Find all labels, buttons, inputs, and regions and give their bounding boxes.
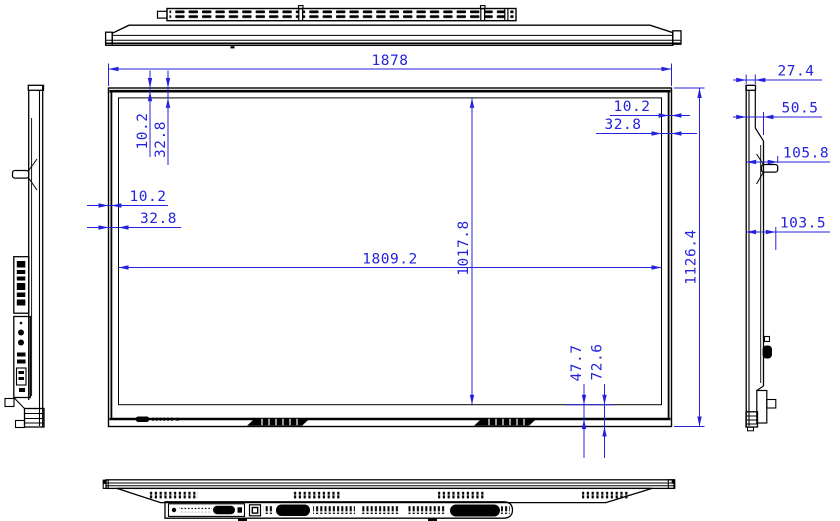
dimension-annotations: 1878 1126.4 1809.2 1017.8 10.2 32.8 10.2… — [87, 53, 830, 458]
bottom-bezel-bar — [106, 480, 674, 489]
dim-depth-handle: 105.8 — [783, 146, 829, 162]
bottom-vent-group-1 — [148, 492, 198, 499]
left-handle — [13, 159, 38, 190]
dim-bezel-top-outer: 32.8 — [153, 121, 169, 158]
dim-active-width: 1809.2 — [362, 252, 417, 268]
dim-bezel-left-outer: 32.8 — [140, 211, 177, 227]
left-connector-panel-lower — [14, 317, 31, 398]
drawing-canvas: 1878 1126.4 1809.2 1017.8 10.2 32.8 10.2… — [0, 0, 840, 521]
right-top-cap — [746, 85, 756, 90]
power-switch — [250, 505, 261, 516]
dim-depth-bottom-connector: 103.5 — [780, 216, 826, 232]
dim-bezel-right-inner: 10.2 — [614, 99, 651, 115]
dsub-connector-left — [276, 505, 310, 517]
left-connector-panel-upper — [14, 257, 29, 314]
dim-depth-body: 50.5 — [782, 101, 819, 117]
top-view — [106, 6, 681, 49]
dim-bezel-right-outer: 32.8 — [605, 117, 642, 133]
dim-bezel-bottom-outer: 72.6 — [590, 344, 606, 381]
bottom-view — [103, 480, 675, 521]
dsub-connector-right — [450, 505, 500, 517]
left-bracket — [5, 399, 14, 407]
dim-depth-panel: 27.4 — [778, 64, 815, 80]
bottom-vent-group-3 — [438, 492, 484, 499]
speaker-grille-right — [474, 418, 537, 425]
top-vent-left-tab — [158, 11, 168, 18]
left-side-view — [5, 85, 44, 427]
top-foot-mark — [231, 46, 235, 48]
right-foot-tab — [767, 400, 776, 409]
bottom-connector-bar — [165, 502, 513, 518]
dim-bezel-top-inner: 10.2 — [135, 113, 151, 150]
bottom-vent-group-4 — [582, 492, 628, 499]
top-vent-slots — [170, 10, 514, 20]
right-side-view — [746, 85, 778, 431]
speaker-grille-left — [247, 418, 310, 425]
dim-overall-width: 1878 — [372, 53, 409, 69]
dim-overall-height: 1126.4 — [684, 229, 700, 284]
dim-bezel-left-inner: 10.2 — [130, 189, 167, 205]
top-chassis — [106, 25, 681, 48]
side-button — [765, 337, 770, 342]
technical-drawing: 1878 1126.4 1809.2 1017.8 10.2 32.8 10.2… — [0, 0, 840, 521]
ir-receiver — [136, 417, 179, 423]
side-port — [763, 346, 773, 359]
dim-active-height: 1017.8 — [456, 220, 472, 275]
bottom-vent-group-2 — [293, 492, 341, 499]
left-top-cap — [28, 85, 43, 90]
right-connector-cover — [757, 391, 767, 424]
dim-bezel-bottom-inner: 47.7 — [569, 345, 585, 382]
right-handle — [757, 154, 778, 184]
right-bottom-cap — [746, 412, 758, 431]
